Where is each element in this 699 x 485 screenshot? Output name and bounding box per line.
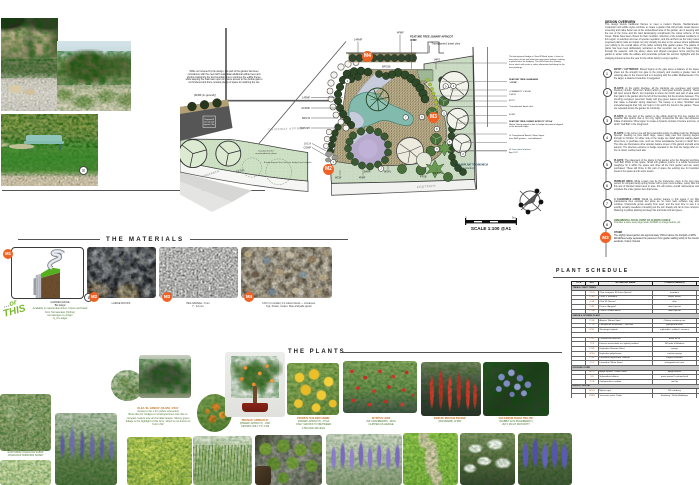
svg-text:4FMF: 4FMF (359, 177, 366, 180)
svg-text:LVC A: LVC A (304, 143, 311, 146)
svg-text:RETAF: RETAF (433, 172, 441, 175)
svg-text:14PO: 14PO (434, 58, 441, 62)
svg-text:5m: 5m (512, 216, 516, 220)
svg-text:14FMF: 14FMF (302, 97, 310, 100)
svg-text:ACFMF: ACFMF (301, 107, 310, 110)
svg-text:WOPL: WOPL (384, 171, 392, 174)
svg-text:approx. 13m2: approx. 13m2 (371, 98, 385, 101)
svg-text:(FutuPg letterbox): (FutuPg letterbox) (456, 167, 475, 170)
svg-text:4FMF: 4FMF (397, 31, 404, 35)
svg-text:SCALE 1:100 @A1: SCALE 1:100 @A1 (471, 226, 512, 231)
svg-text:0: 0 (465, 216, 467, 220)
svg-text:4FMF: 4FMF (410, 38, 417, 42)
svg-text:COMP: COMP (304, 147, 312, 150)
svg-text:WCW: WCW (335, 177, 342, 180)
svg-text:aspens 7.0m: aspens 7.0m (204, 124, 215, 126)
svg-text:'Transplanted' dwarf olive: 'Transplanted' dwarf olive (431, 42, 461, 46)
svg-text:BARA: BARA (364, 171, 371, 174)
svg-text:FEATURE TREE: DWARF APRICOT: FEATURE TREE: DWARF APRICOT (410, 35, 453, 39)
svg-text:BFS.W: BFS.W (302, 117, 311, 120)
svg-text:'Lawn': 'Lawn' (374, 96, 380, 98)
svg-text:4'FSB: 4'FSB (420, 176, 427, 179)
svg-text:Chamomile: Chamomile (372, 94, 383, 96)
svg-text:14FMF: 14FMF (354, 38, 363, 42)
svg-text:A wide-layered fern leaf tree: A wide-layered fern leaf tree hedge from… (264, 161, 312, 164)
svg-text:BFGS6: BFGS6 (382, 65, 391, 69)
svg-text:RUT22H: RUT22H (300, 127, 310, 130)
svg-text:TRANSPLANT TECHNONICIA: TRANSPLANT TECHNONICIA (456, 164, 488, 167)
svg-text:accommodate by clients: accommodate by clients (255, 152, 276, 155)
